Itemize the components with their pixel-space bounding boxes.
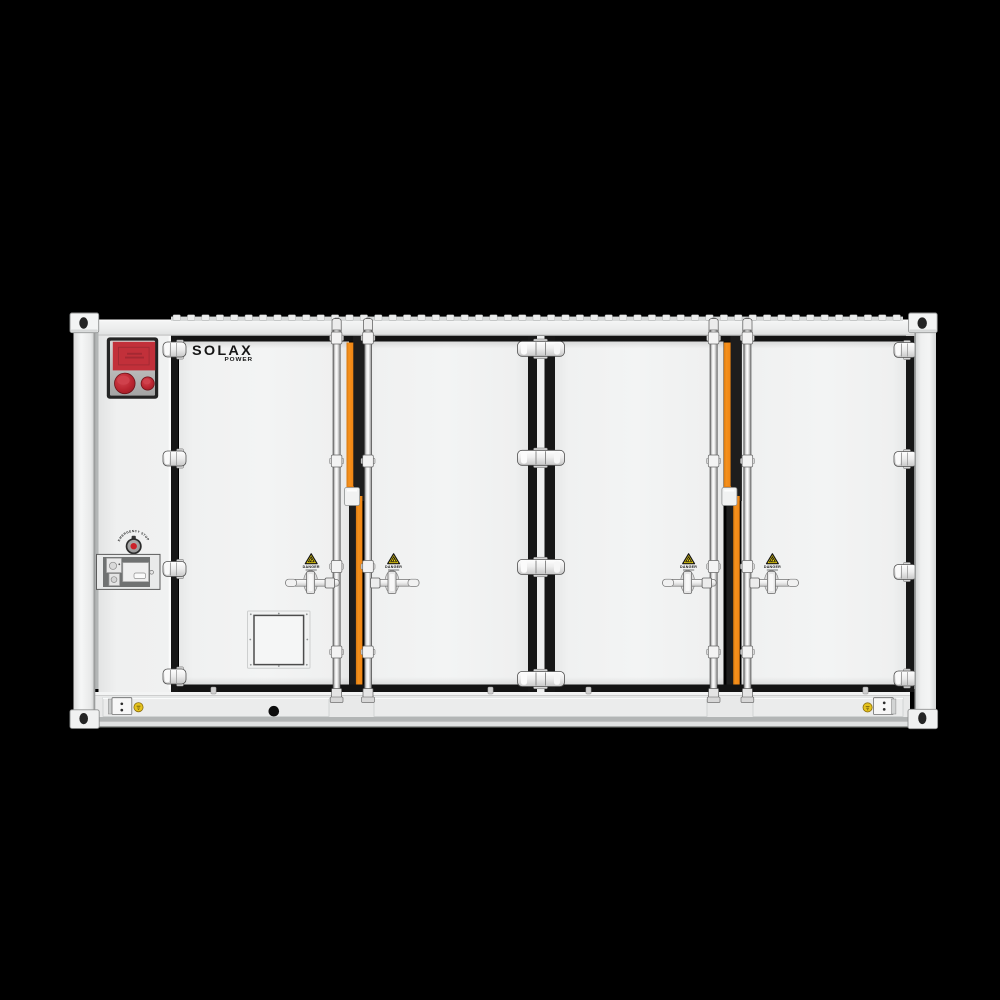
svg-text:DANGER: DANGER xyxy=(680,565,697,569)
svg-text:DANGER: DANGER xyxy=(385,565,402,569)
svg-text:DANGER: DANGER xyxy=(303,565,320,569)
svg-text:DANGER: DANGER xyxy=(764,565,781,569)
svg-text:POWER: POWER xyxy=(225,357,254,363)
